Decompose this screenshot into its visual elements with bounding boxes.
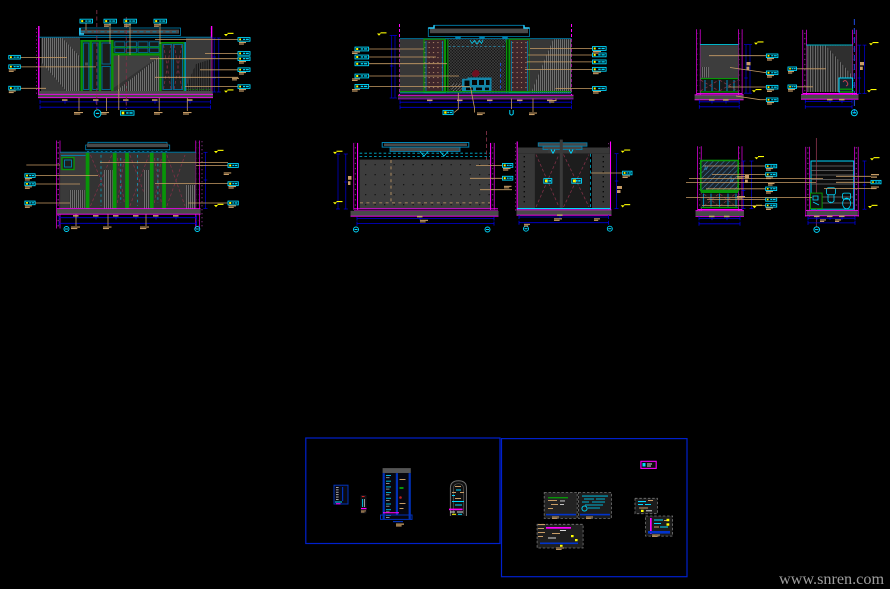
- svg-text:www.snren.com: www.snren.com: [779, 570, 884, 588]
